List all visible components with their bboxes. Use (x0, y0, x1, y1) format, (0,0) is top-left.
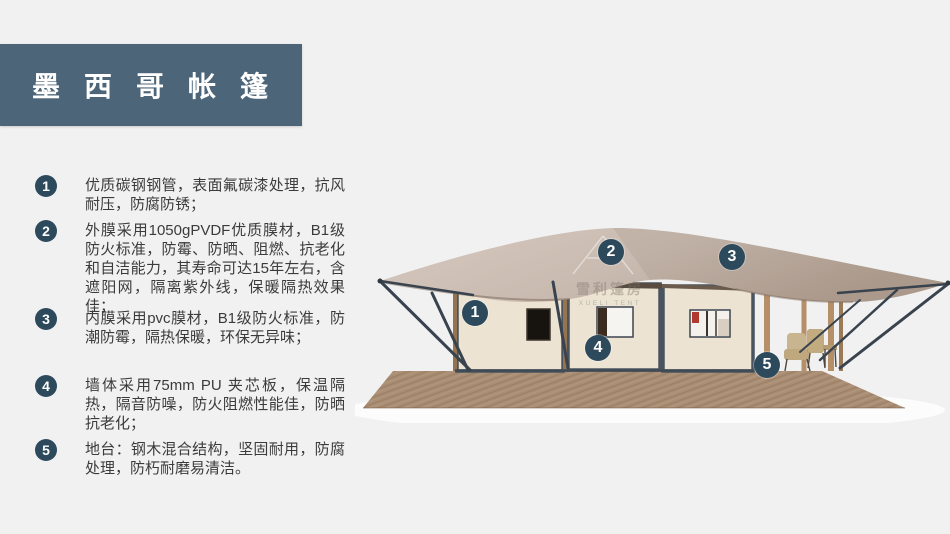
tent-illustration: 雪利篷房 XUELI TENT (355, 218, 950, 423)
feature-number-badge: 1 (35, 175, 57, 197)
diagram-callout-2: 2 (598, 239, 624, 265)
window-1 (527, 309, 550, 340)
feature-text: 外膜采用1050gPVDF优质膜材，B1级防火标准，防霉、防晒、阻燃、抗老化和自… (85, 221, 345, 316)
feature-item-5: 5 地台：钢木混合结构，坚固耐用，防腐处理，防朽耐磨易清洁。 (35, 440, 345, 478)
feature-item-2: 2 外膜采用1050gPVDF优质膜材，B1级防火标准，防霉、防晒、阻燃、抗老化… (35, 221, 345, 316)
feature-text: 内膜采用pvc膜材，B1级防火标准，防潮防霉，隔热保暖，环保无异味； (85, 309, 345, 347)
feature-text: 优质碳钢钢管，表面氟碳漆处理，抗风耐压，防腐防锈； (85, 176, 345, 214)
feature-number-badge: 5 (35, 439, 57, 461)
feature-number-badge: 3 (35, 308, 57, 330)
feature-number-badge: 4 (35, 375, 57, 397)
diagram-callout-3: 3 (719, 244, 745, 270)
feature-item-4: 4 墙体采用75mm PU 夹芯板，保温隔热，隔音防噪，防火阻燃性能佳，防晒抗老… (35, 376, 345, 433)
feature-item-3: 3 内膜采用pvc膜材，B1级防火标准，防潮防霉，隔热保暖，环保无异味； (35, 309, 345, 347)
page-title: 墨西哥帐篷 (0, 44, 302, 126)
diagram-callout-5: 5 (754, 352, 780, 378)
feature-text: 地台：钢木混合结构，坚固耐用，防腐处理，防朽耐磨易清洁。 (85, 440, 345, 478)
diagram-callout-1: 1 (462, 300, 488, 326)
feature-text: 墙体采用75mm PU 夹芯板，保温隔热，隔音防噪，防火阻燃性能佳，防晒抗老化； (85, 376, 345, 433)
door-opening (598, 308, 607, 336)
window-interior-item (692, 312, 699, 323)
page-title-text: 墨西哥帐篷 (32, 65, 292, 105)
feature-item-1: 1 优质碳钢钢管，表面氟碳漆处理，抗风耐压，防腐防锈； (35, 176, 345, 214)
feature-number-badge: 2 (35, 220, 57, 242)
slide-page: 墨西哥帐篷 1 优质碳钢钢管，表面氟碳漆处理，抗风耐压，防腐防锈； 2 外膜采用… (0, 0, 950, 534)
wood-deck (363, 371, 905, 408)
wire-anchor (378, 279, 383, 284)
watermark-en: XUELI TENT (579, 300, 641, 307)
watermark-cn: 雪利篷房 (576, 281, 644, 297)
diagram-callout-4: 4 (585, 335, 611, 361)
